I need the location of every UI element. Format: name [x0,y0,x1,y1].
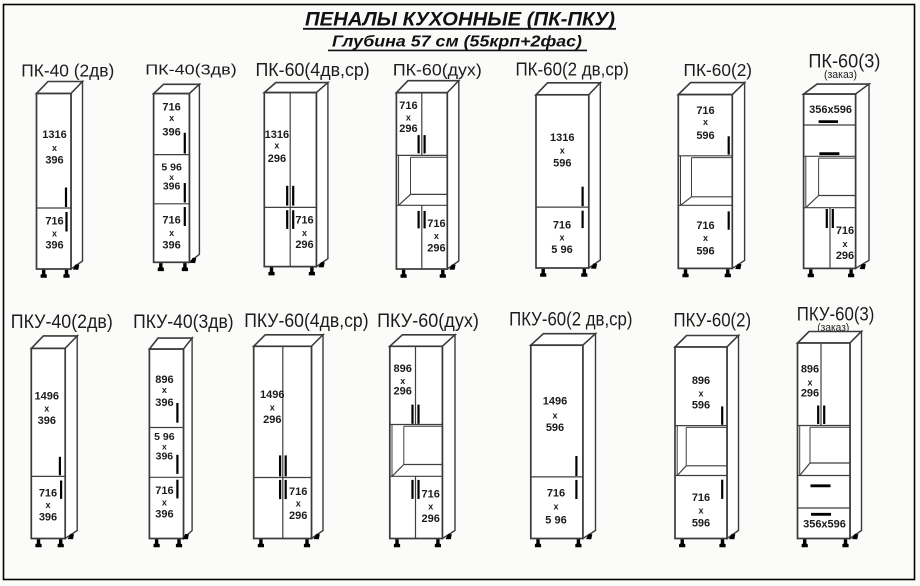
svg-text:296: 296 [399,123,417,135]
svg-text:296: 296 [289,510,307,522]
svg-text:х: х [45,500,50,510]
svg-text:716: 716 [696,220,714,232]
svg-text:296: 296 [263,414,281,426]
svg-text:х: х [162,498,167,508]
svg-text:(заказ): (заказ) [824,69,857,81]
svg-text:596: 596 [692,518,710,530]
svg-text:х: х [406,113,411,123]
svg-text:х: х [698,389,703,399]
svg-text:296: 296 [268,153,286,165]
svg-text:ПК-60(2): ПК-60(2) [684,60,753,80]
svg-text:396: 396 [162,127,180,139]
svg-text:х: х [274,141,279,151]
svg-text:х: х [559,233,564,243]
svg-text:х: х [703,117,708,127]
svg-text:716: 716 [162,102,180,114]
svg-text:ПК-40(3дв): ПК-40(3дв) [145,62,237,79]
svg-text:396: 396 [155,509,173,521]
svg-text:716: 716 [155,485,173,497]
svg-text:5 96: 5 96 [545,514,566,526]
svg-text:ПК-60(2 дв,ср): ПК-60(2 дв,ср) [516,59,629,79]
svg-text:ПКУ-40(3дв): ПКУ-40(3дв) [133,312,234,333]
svg-text:х: х [807,378,812,388]
svg-text:396: 396 [38,415,56,427]
svg-text:716: 716 [295,215,313,227]
svg-text:296: 296 [295,239,313,251]
svg-text:596: 596 [546,422,564,434]
svg-text:ПКУ-40(2дв): ПКУ-40(2дв) [11,312,113,333]
svg-text:х: х [560,145,565,155]
svg-text:296: 296 [836,250,854,262]
svg-text:596: 596 [696,246,714,258]
svg-text:356х596: 356х596 [803,519,846,531]
svg-text:ПКУ-60(2 дв,ср): ПКУ-60(2 дв,ср) [509,310,632,331]
svg-text:296: 296 [427,243,445,255]
svg-text:396: 396 [39,512,57,524]
svg-text:716: 716 [553,219,571,231]
svg-text:1496: 1496 [260,389,284,401]
svg-text:ПК-60(4дв,ср): ПК-60(4дв,ср) [256,60,370,80]
svg-text:х: х [44,404,49,414]
svg-text:х: х [270,403,275,413]
svg-text:Глубина 57 см (55крп+2фас): Глубина 57 см (55крп+2фас) [332,33,582,50]
svg-text:396: 396 [162,240,180,252]
svg-text:716: 716 [547,488,565,500]
svg-text:1316: 1316 [42,129,66,141]
svg-text:296: 296 [801,388,819,400]
svg-text:1496: 1496 [543,396,567,408]
svg-text:х: х [52,143,57,153]
svg-text:х: х [552,411,557,421]
svg-text:896: 896 [692,375,710,387]
svg-text:х: х [434,231,439,241]
svg-text:х: х [428,502,433,512]
svg-text:х: х [842,239,847,249]
svg-text:596: 596 [553,157,571,169]
svg-text:ПКУ-60(дух): ПКУ-60(дух) [377,311,479,332]
svg-text:396: 396 [45,240,63,252]
svg-text:х: х [400,376,405,386]
svg-text:х: х [52,229,57,239]
svg-text:ПКУ-60(2): ПКУ-60(2) [674,311,752,332]
svg-text:х: х [703,233,708,243]
svg-text:716: 716 [422,489,440,501]
svg-text:716: 716 [399,100,417,112]
svg-text:ПК-40 (2дв): ПК-40 (2дв) [21,61,114,81]
svg-text:396: 396 [45,155,63,167]
svg-text:396: 396 [163,181,181,193]
svg-text:716: 716 [836,225,854,237]
svg-text:596: 596 [696,130,714,142]
svg-text:х: х [553,502,558,512]
svg-text:716: 716 [427,218,445,230]
svg-text:716: 716 [45,216,63,228]
svg-text:716: 716 [696,105,714,117]
svg-text:5 96: 5 96 [551,244,572,256]
svg-text:716: 716 [692,492,710,504]
svg-text:896: 896 [801,364,819,376]
svg-text:396: 396 [156,451,174,463]
svg-text:х: х [162,385,167,395]
svg-text:х: х [302,228,307,238]
svg-text:296: 296 [422,513,440,525]
svg-text:716: 716 [289,486,307,498]
svg-text:896: 896 [394,363,412,375]
svg-text:ПЕНАЛЫ КУХОННЫЕ (ПК-ПКУ): ПЕНАЛЫ КУХОННЫЕ (ПК-ПКУ) [305,9,615,31]
svg-text:296: 296 [394,386,412,398]
svg-text:1496: 1496 [35,391,59,403]
svg-text:х: х [169,113,174,123]
svg-text:ПК-60(дух): ПК-60(дух) [393,60,482,79]
svg-text:356х596: 356х596 [809,104,852,116]
svg-text:396: 396 [155,397,173,409]
svg-text:х: х [296,499,301,509]
svg-text:716: 716 [39,487,57,499]
svg-text:1316: 1316 [550,132,574,144]
svg-text:х: х [698,506,703,516]
svg-text:1316: 1316 [265,129,289,141]
svg-text:596: 596 [692,400,710,412]
svg-text:х: х [169,228,174,238]
svg-text:ПКУ-60(4дв,ср): ПКУ-60(4дв,ср) [244,311,368,332]
svg-text:716: 716 [162,215,180,227]
